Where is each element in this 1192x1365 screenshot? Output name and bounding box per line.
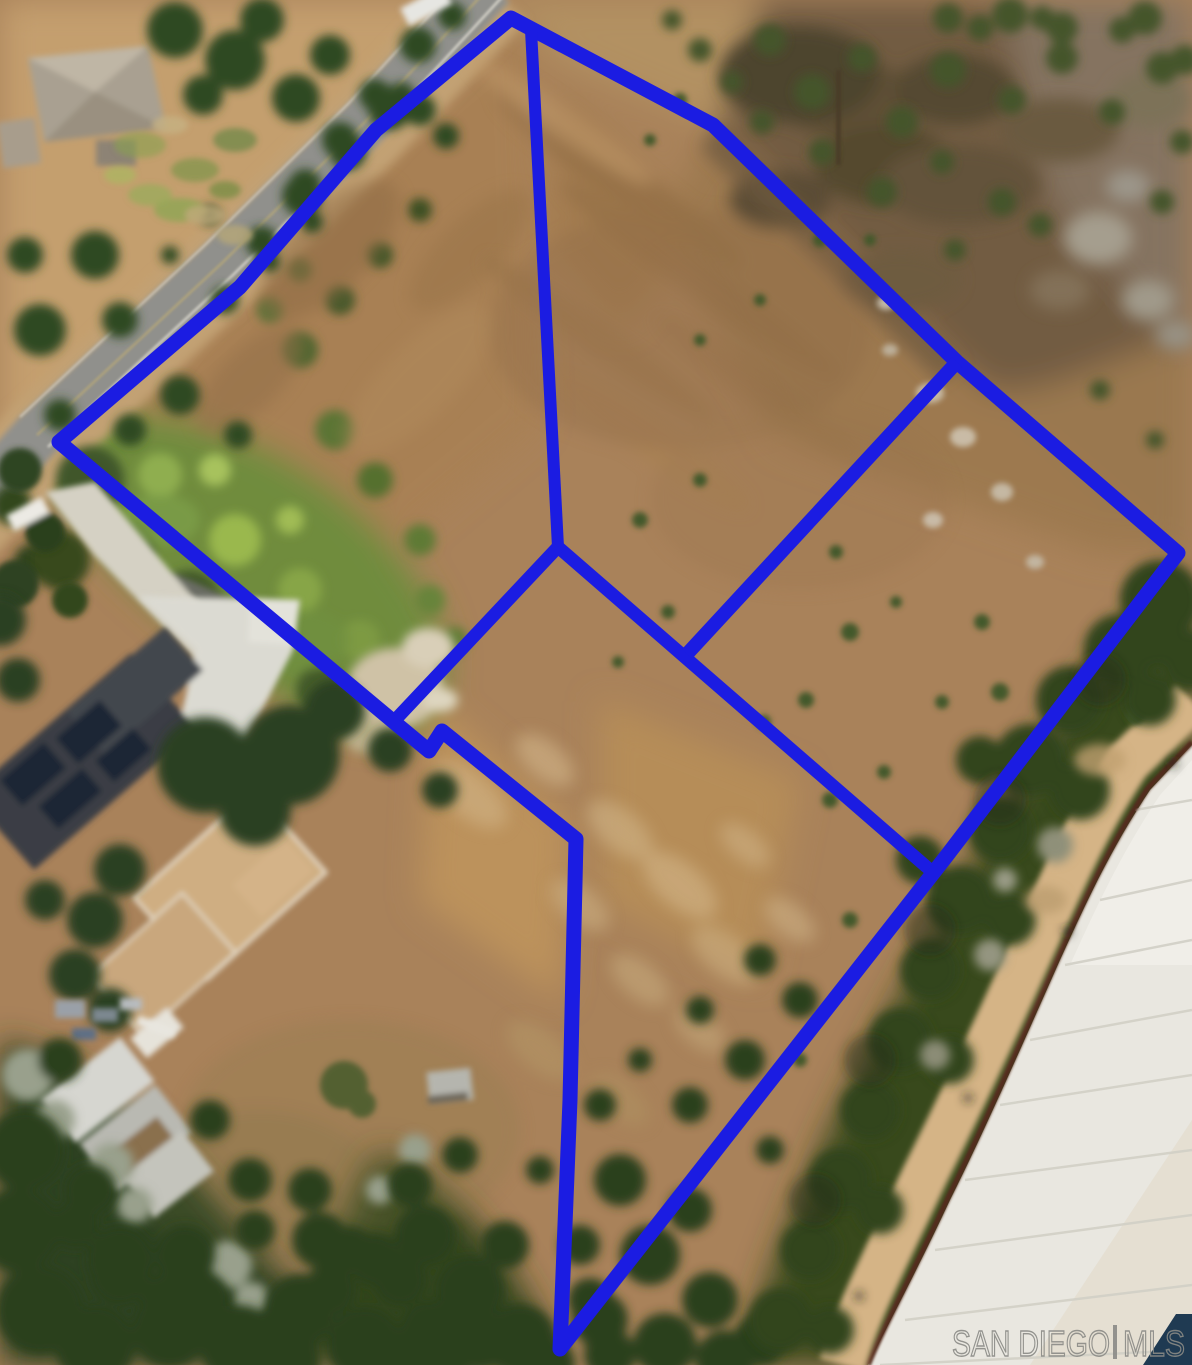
svg-text:MLS: MLS <box>1123 1323 1185 1364</box>
svg-text:SAN DIEGO: SAN DIEGO <box>952 1323 1110 1364</box>
